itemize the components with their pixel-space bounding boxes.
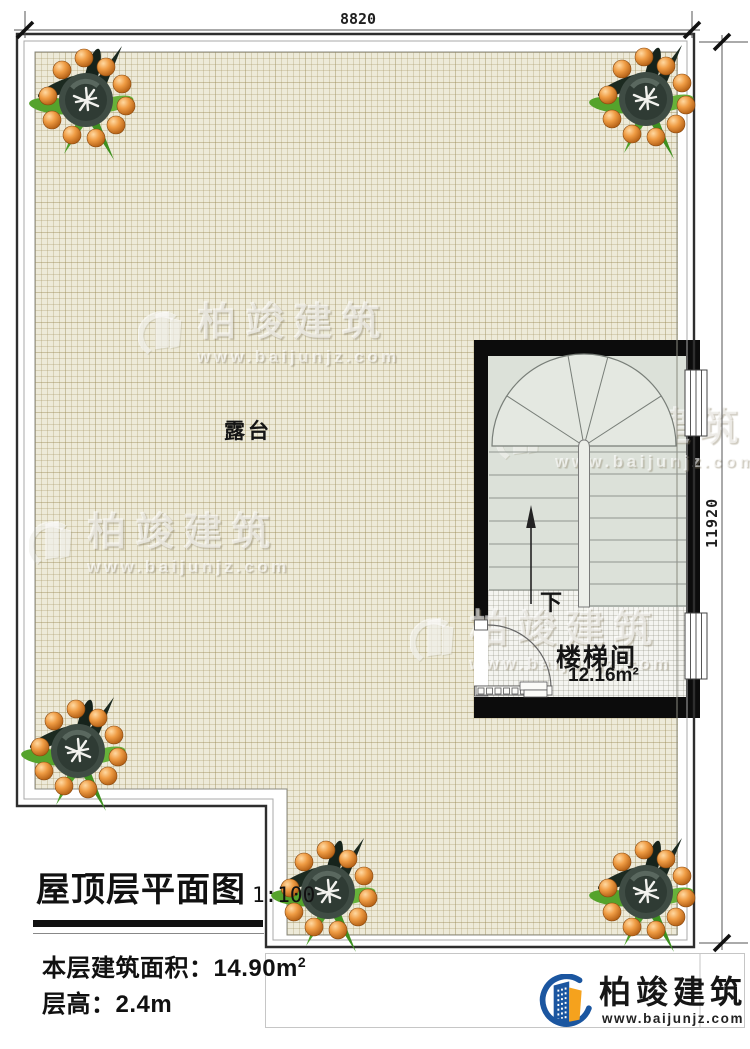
stair-treads-right-extension (590, 590, 686, 607)
floor-area-row: 本层建筑面积：14.90m2 (42, 948, 306, 983)
stair-room-wall-left (474, 340, 488, 620)
floor-area-text: 本层建筑面积：14.90m (42, 955, 298, 982)
dimension-top-label: 8820 (328, 10, 388, 28)
floor-height-row: 层高：2.4m (42, 984, 172, 1019)
company-logo: 柏竣建筑 www.baijunjz.com (534, 974, 747, 1028)
dimension-tick (714, 935, 730, 951)
terrace-area-lower (287, 789, 678, 935)
title-underline-thick (33, 920, 263, 927)
title-underline-thin (33, 933, 264, 934)
dimension-tick (17, 22, 33, 38)
drawing-title-row: 屋顶层平面图 1:100 (36, 872, 315, 909)
stair-room-wall-bottom (474, 697, 700, 718)
floorplan-canvas: 柏竣建筑 www.baijunjz.com 柏竣建筑 www.baijunjz.… (0, 0, 750, 1049)
floor-height-text: 层高：2.4m (42, 991, 172, 1018)
company-name: 柏竣建筑 (599, 976, 747, 1010)
drawing-scale: 1:100 (252, 883, 315, 907)
stair-treads-area (488, 356, 686, 590)
dimension-right-label: 11920 (703, 468, 721, 548)
terrace-label: 露台 (224, 415, 272, 445)
company-website: www.baijunjz.com (602, 1011, 744, 1026)
stair-direction-label: 下 (540, 585, 562, 617)
drawing-title: 屋顶层平面图 (36, 872, 246, 909)
stair-room-area: 12.16m² (568, 665, 639, 687)
stair-room-wall-right (686, 340, 700, 697)
dimension-tick (684, 22, 700, 38)
floor-area-sup: 2 (298, 954, 306, 970)
dimension-tick (714, 34, 730, 50)
company-logo-icon (534, 974, 592, 1028)
stair-room-wall-top (474, 340, 700, 356)
